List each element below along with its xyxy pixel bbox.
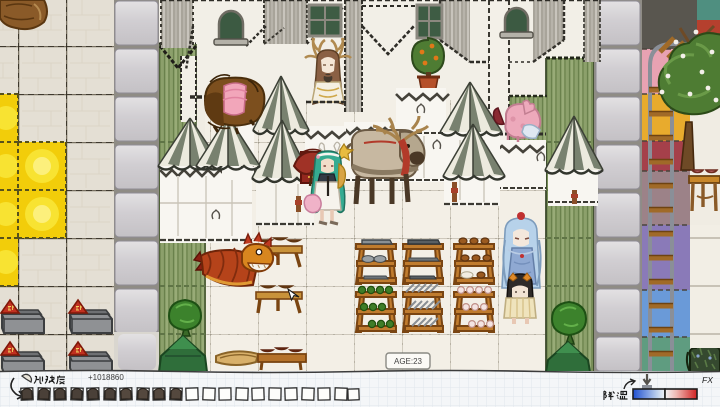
svg-text:AGE:23: AGE:23 (394, 357, 423, 366)
svg-text:FX: FX (702, 375, 713, 385)
svg-text:+1018860: +1018860 (88, 373, 124, 382)
